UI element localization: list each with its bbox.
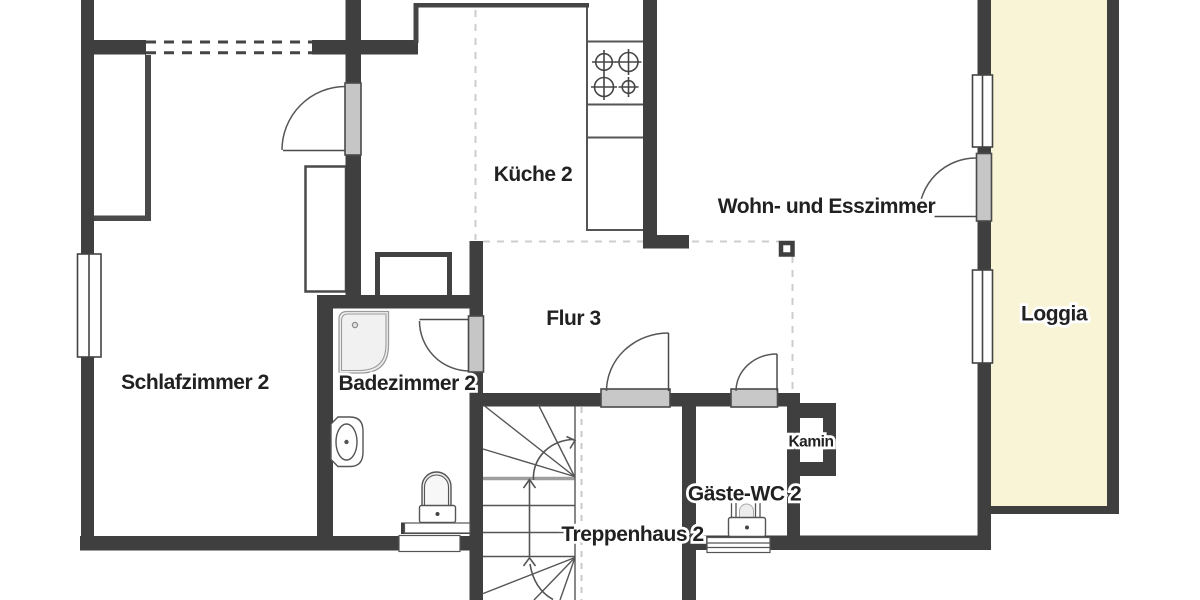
svg-text:Loggia: Loggia — [1021, 303, 1088, 326]
svg-text:Küche 2: Küche 2 — [494, 163, 573, 186]
svg-text:Flur 3: Flur 3 — [546, 307, 600, 330]
svg-text:Treppenhaus 2: Treppenhaus 2 — [561, 523, 703, 546]
svg-text:Kamin: Kamin — [788, 434, 833, 451]
svg-text:Gäste-WC 2: Gäste-WC 2 — [688, 483, 801, 506]
svg-text:Wohn- und Esszimmer: Wohn- und Esszimmer — [718, 195, 936, 218]
svg-text:Schlafzimmer 2: Schlafzimmer 2 — [121, 371, 269, 394]
svg-text:Badezimmer 2: Badezimmer 2 — [339, 372, 476, 395]
